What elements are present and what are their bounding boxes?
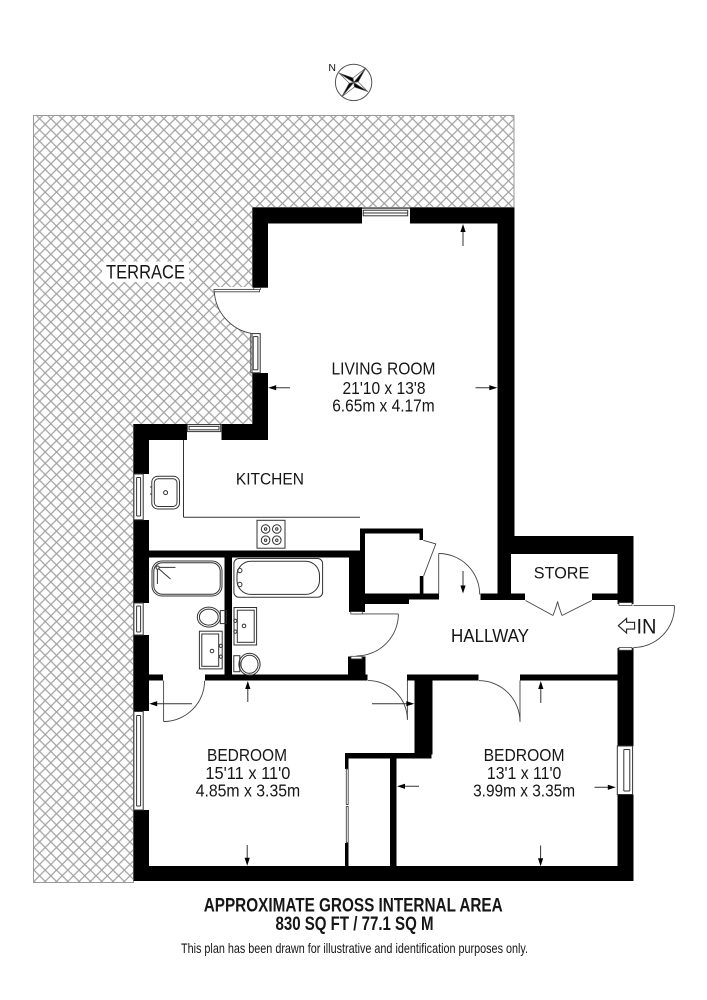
svg-text:LIVING ROOM: LIVING ROOM bbox=[332, 358, 436, 378]
svg-text:6.65m x 4.17m: 6.65m x 4.17m bbox=[332, 395, 435, 415]
svg-text:BEDROOM: BEDROOM bbox=[484, 745, 565, 765]
svg-text:4.85m x 3.35m: 4.85m x 3.35m bbox=[196, 781, 301, 801]
svg-text:BEDROOM: BEDROOM bbox=[207, 745, 287, 765]
svg-text:N: N bbox=[328, 63, 336, 74]
svg-text:TERRACE: TERRACE bbox=[106, 262, 185, 283]
svg-text:3.99m x 3.35m: 3.99m x 3.35m bbox=[473, 781, 575, 801]
svg-text:IN: IN bbox=[637, 614, 657, 638]
svg-text:KITCHEN: KITCHEN bbox=[236, 469, 304, 488]
svg-text:830 SQ FT / 77.1 SQ M: 830 SQ FT / 77.1 SQ M bbox=[276, 914, 434, 935]
svg-text:This plan has been drawn for i: This plan has been drawn for illustrativ… bbox=[181, 940, 528, 956]
svg-text:STORE: STORE bbox=[534, 564, 590, 583]
svg-text:HALLWAY: HALLWAY bbox=[451, 625, 529, 646]
